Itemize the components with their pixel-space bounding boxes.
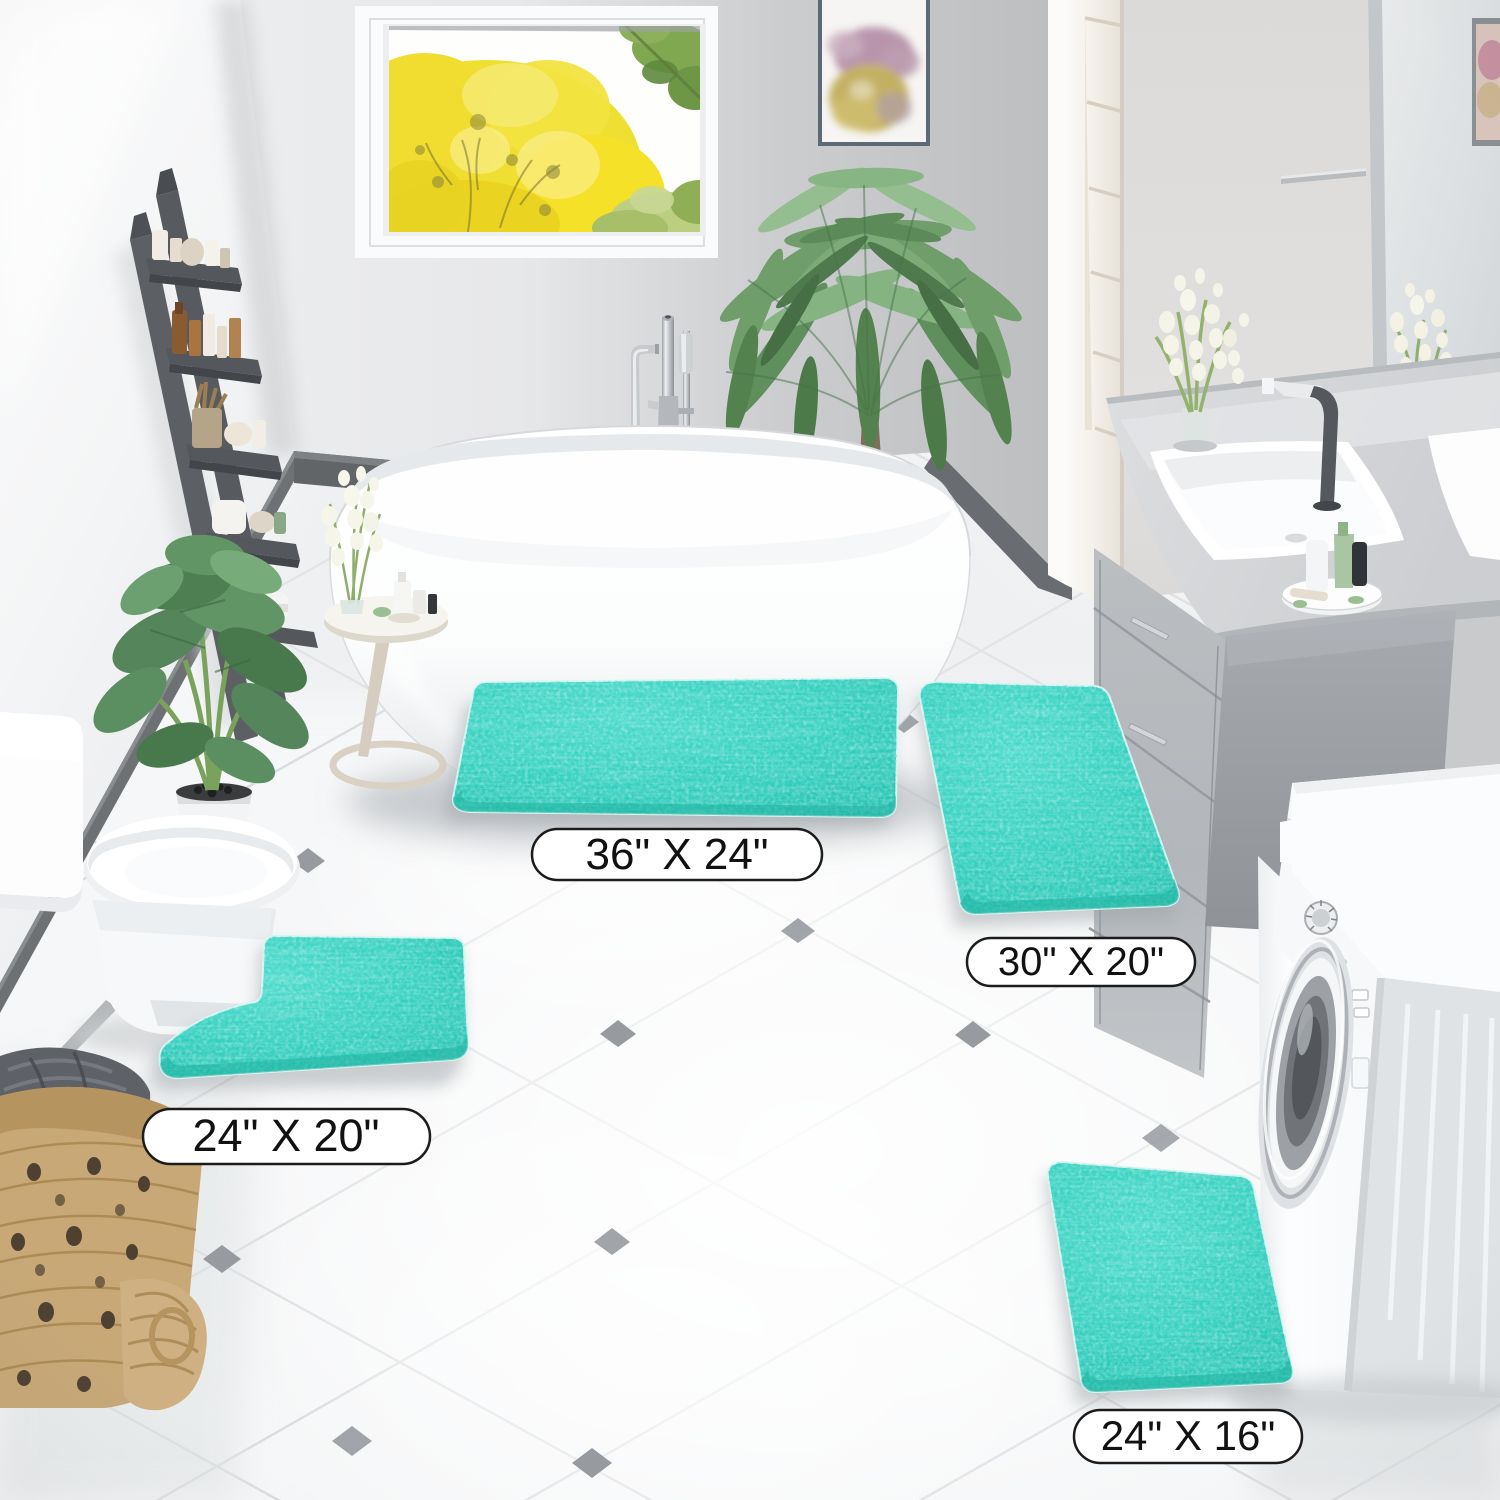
- svg-text:30" X 20": 30" X 20": [998, 940, 1164, 984]
- svg-text:24" X 16": 24" X 16": [1101, 1412, 1276, 1459]
- svg-text:24" X 20": 24" X 20": [192, 1110, 379, 1161]
- svg-text:36" X 24": 36" X 24": [586, 830, 769, 879]
